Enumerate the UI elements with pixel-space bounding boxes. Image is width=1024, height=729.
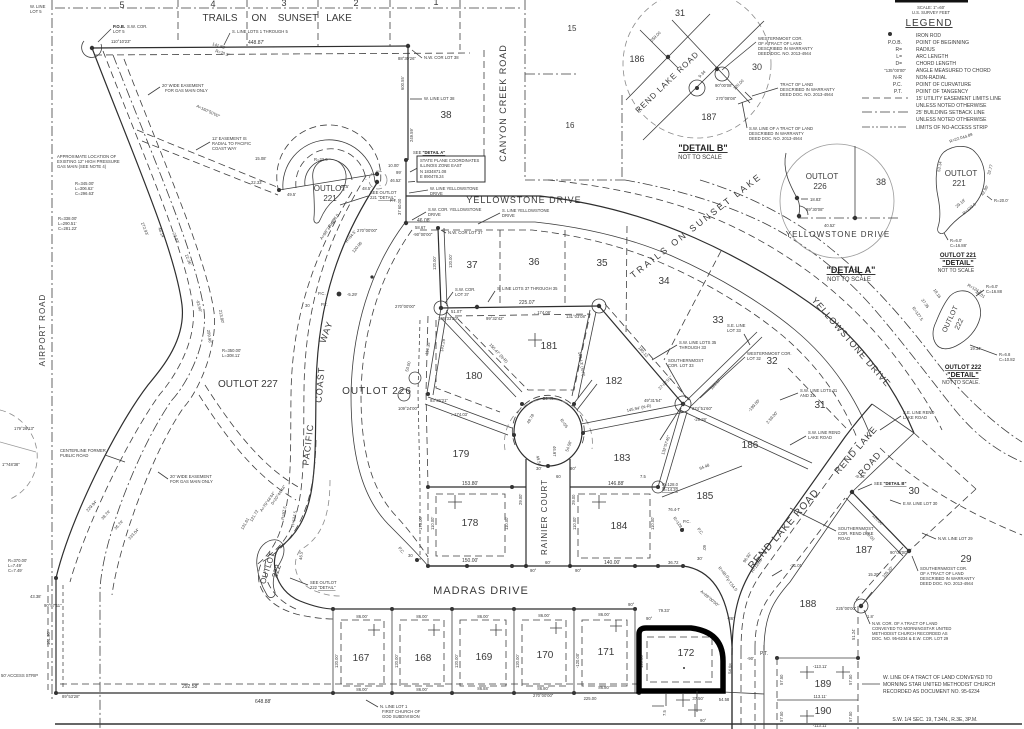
svg-text:RECORDED AS DOCUMENT NO. 95-62: RECORDED AS DOCUMENT NO. 95-6234: [883, 689, 980, 695]
svg-text:LIMITS OF NO-ACCESS STRIP: LIMITS OF NO-ACCESS STRIP: [916, 125, 988, 131]
svg-text:222 "DETAIL": 222 "DETAIL": [310, 585, 336, 590]
svg-text:185: 185: [697, 491, 714, 502]
svg-text:29: 29: [960, 554, 972, 565]
svg-text:90°: 90°: [628, 602, 635, 607]
svg-text:15.20': 15.20': [868, 572, 879, 577]
svg-text:89°53'28": 89°53'28": [62, 694, 80, 699]
svg-text:1: 1: [433, 0, 438, 7]
svg-text:249.59': 249.59': [409, 128, 414, 142]
svg-text:NON-RADIAL: NON-RADIAL: [916, 75, 947, 81]
svg-text:AND 32: AND 32: [800, 393, 815, 398]
svg-text:U.S. SURVEY FEET: U.S. SURVEY FEET: [912, 10, 951, 15]
svg-text:38: 38: [440, 110, 452, 121]
svg-text:-5.29': -5.29': [347, 292, 358, 297]
svg-text:15.08': 15.08': [255, 156, 266, 161]
svg-text:57.50: 57.50: [779, 711, 784, 722]
svg-text:YELLOWSTONE DRIVE: YELLOWSTONE DRIVE: [786, 230, 890, 239]
svg-text:"DETAIL": "DETAIL": [947, 372, 978, 379]
svg-text:C=296.63': C=296.63': [75, 191, 94, 196]
svg-text:-113.11': -113.11': [813, 723, 828, 728]
svg-text:"DETAIL A": "DETAIL A": [827, 265, 876, 275]
svg-text:30': 30': [536, 466, 542, 471]
svg-text:180: 180: [466, 371, 483, 382]
svg-text:38: 38: [876, 177, 886, 187]
svg-text:E.W. LINE LOT 30: E.W. LINE LOT 30: [903, 501, 938, 506]
svg-text:LOT 32: LOT 32: [747, 356, 762, 361]
svg-text:60: 60: [556, 474, 561, 479]
svg-text:270°08'08": 270°08'08": [716, 96, 737, 101]
svg-text:88°30'26": 88°30'26": [398, 56, 416, 61]
svg-text:37: 37: [466, 260, 478, 271]
svg-text:3: 3: [281, 0, 286, 8]
svg-text:ANGLE MEASURED TO CHORD: ANGLE MEASURED TO CHORD: [916, 68, 991, 74]
svg-text:CHORD LENGTH: CHORD LENGTH: [916, 61, 956, 67]
svg-text:FOR GAS MAIN ONLY: FOR GAS MAIN ONLY: [165, 88, 208, 93]
svg-text:40.52': 40.52': [824, 223, 835, 228]
svg-text:648.88': 648.88': [255, 699, 271, 705]
svg-text:COR. LOT 33: COR. LOT 33: [668, 363, 694, 368]
svg-text:36: 36: [528, 257, 540, 268]
svg-text:120.00': 120.00': [432, 256, 437, 270]
svg-text:RADIUS: RADIUS: [916, 47, 936, 53]
svg-text:90°: 90°: [530, 568, 537, 573]
svg-text:DEED DOC. NO. 2013-4944: DEED DOC. NO. 2013-4944: [758, 51, 812, 56]
svg-text:C=7.49': C=7.49': [8, 568, 23, 573]
svg-text:OUTLOT 222: OUTLOT 222: [945, 365, 982, 371]
svg-text:NOT TO SCALE: NOT TO SCALE: [827, 277, 871, 283]
svg-text:90°57'11": 90°57'11": [44, 603, 62, 608]
svg-text:15: 15: [568, 24, 577, 33]
svg-text:167: 167: [353, 653, 370, 664]
svg-text:MORNING STAR UNITED METHODIST: MORNING STAR UNITED METHODIST CHURCH: [883, 682, 996, 688]
svg-text:183: 183: [614, 453, 631, 464]
svg-text:1.8': 1.8': [867, 614, 874, 619]
svg-text:86.88': 86.88': [477, 686, 488, 691]
svg-text:86.00': 86.00': [598, 612, 609, 617]
svg-text:COAST WAY: COAST WAY: [212, 146, 237, 151]
svg-text:IRON ROD: IRON ROD: [916, 33, 941, 39]
svg-text:C=16.88: C=16.88: [986, 289, 1003, 294]
svg-text:110.00': 110.00': [430, 517, 435, 530]
svg-text:170: 170: [537, 650, 554, 661]
svg-text:184: 184: [611, 521, 628, 532]
svg-text:181: 181: [541, 341, 558, 352]
svg-text:86.00': 86.00': [356, 614, 367, 619]
svg-text:R=22.0: R=22.0: [314, 157, 328, 162]
svg-text:79.33': 79.33': [658, 608, 669, 613]
svg-text:60': 60': [702, 545, 707, 551]
svg-text:86.80': 86.80': [537, 686, 548, 691]
svg-text:270°00'00": 270°00'00": [357, 228, 378, 233]
svg-text:168: 168: [415, 653, 432, 664]
svg-text:-90°00'00": -90°00'00": [413, 232, 433, 237]
svg-text:"DETAIL B": "DETAIL B": [678, 143, 727, 153]
svg-text:W. LINE OF A TRACT OF LAND CON: W. LINE OF A TRACT OF LAND CONVEYED TO: [883, 675, 992, 681]
svg-text:89°30'08": 89°30'08": [806, 207, 824, 212]
svg-text:P.C.: P.C.: [318, 291, 326, 296]
svg-text:179: 179: [453, 449, 470, 460]
svg-text:-36': -36': [727, 616, 734, 621]
svg-text:10.00': 10.00': [388, 163, 399, 168]
svg-text:110.00': 110.00': [504, 517, 509, 530]
svg-text:"135°00'00": "135°00'00": [884, 68, 906, 73]
svg-text:600.55': 600.55': [400, 76, 405, 90]
svg-text:UNLESS NOTED OTHERWISE: UNLESS NOTED OTHERWISE: [916, 103, 987, 109]
svg-text:THROUGH 33: THROUGH 33: [679, 345, 707, 350]
svg-text:-113.11': -113.11': [813, 664, 828, 669]
svg-text:169: 169: [476, 652, 493, 663]
svg-text:60': 60': [545, 560, 551, 565]
svg-text:36.72: 36.72: [668, 560, 679, 565]
svg-text:L=308.11': L=308.11': [222, 353, 240, 358]
svg-text:N.W. COR LOT 37: N.W. COR LOT 37: [448, 230, 483, 235]
svg-text:140.00': 140.00': [604, 560, 620, 566]
svg-text:110°10'23": 110°10'23": [111, 39, 131, 44]
svg-text:57.50: 57.50: [779, 674, 784, 685]
svg-text:"DETAIL": "DETAIL": [942, 260, 973, 267]
svg-text:ON: ON: [252, 13, 267, 24]
svg-text:120.00': 120.00': [515, 654, 520, 668]
svg-text:CANYON CREEK ROAD: CANYON CREEK ROAD: [498, 44, 508, 162]
svg-text:175.00': 175.00': [418, 516, 423, 530]
svg-text:OUTLOT 227: OUTLOT 227: [218, 379, 278, 390]
svg-text:25' BUILDING SETBACK LINE: 25' BUILDING SETBACK LINE: [916, 110, 985, 116]
svg-text:LAKE ROAD: LAKE ROAD: [808, 435, 832, 440]
svg-text:S.W. COR.: S.W. COR.: [127, 24, 147, 29]
svg-text:DEED DOC. NO. 2013-4944: DEED DOC. NO. 2013-4944: [749, 136, 803, 141]
svg-text:S. LINE LOTS 1 THROUGH 5: S. LINE LOTS 1 THROUGH 5: [232, 29, 288, 34]
svg-text:5: 5: [119, 0, 124, 10]
svg-text:R=: R=: [895, 47, 902, 53]
svg-text:172: 172: [678, 648, 695, 659]
svg-text:113.11': 113.11': [814, 694, 827, 699]
svg-text:190: 190: [815, 706, 832, 717]
svg-text:7.5: 7.5: [640, 474, 646, 479]
svg-text:C=10.82: C=10.82: [999, 357, 1016, 362]
svg-text:30': 30': [697, 556, 703, 561]
svg-text:ILLINOIS ZONE EAST: ILLINOIS ZONE EAST: [420, 163, 463, 168]
svg-text:LAKE ROAD: LAKE ROAD: [903, 415, 927, 420]
svg-text:C=14.20: C=14.20: [662, 487, 679, 492]
svg-text:PUBLIC ROAD: PUBLIC ROAD: [60, 453, 88, 458]
svg-text:86.00': 86.00': [416, 614, 427, 619]
svg-text:-21.01': -21.01': [790, 563, 803, 568]
svg-text:179°26'13": 179°26'13": [14, 426, 35, 431]
svg-text:S. LINE LOTS 37 THROUGH 35: S. LINE LOTS 37 THROUGH 35: [497, 286, 558, 291]
svg-text:221: 221: [952, 179, 966, 188]
svg-text:TRAILS: TRAILS: [202, 13, 237, 24]
svg-text:448.87': 448.87': [248, 40, 264, 46]
svg-text:150.00': 150.00': [462, 558, 478, 564]
svg-text:90°: 90°: [570, 466, 577, 471]
svg-text:LOT 37: LOT 37: [455, 292, 470, 297]
svg-text:7.5: 7.5: [662, 710, 667, 716]
svg-text:D=: D=: [895, 61, 902, 67]
svg-text:FOR GAS MAIN ONLY: FOR GAS MAIN ONLY: [170, 479, 213, 484]
svg-text:16: 16: [566, 121, 575, 130]
svg-text:86.80': 86.80': [598, 685, 609, 690]
svg-text:188: 188: [800, 599, 817, 610]
svg-text:15' UTILITY EASEMENT LIMITS LI: 15' UTILITY EASEMENT LIMITS LINE: [916, 96, 1002, 102]
svg-text:49.5': 49.5': [287, 192, 296, 197]
svg-text:N-R: N-R: [893, 75, 902, 81]
svg-text:P.T.: P.T.: [321, 302, 328, 307]
svg-text:57.50: 57.50: [848, 674, 853, 685]
svg-text:225°00'00": 225°00'00": [836, 606, 857, 611]
svg-text:29.00': 29.00': [518, 494, 523, 505]
svg-text:90°: 90°: [646, 616, 653, 621]
svg-text:SUNSET: SUNSET: [278, 13, 319, 24]
svg-text:54.58: 54.58: [719, 697, 730, 702]
svg-text:LOT 5: LOT 5: [30, 9, 42, 14]
svg-text:153.80': 153.80': [462, 481, 478, 487]
svg-text:MADRAS DRIVE: MADRAS DRIVE: [433, 585, 529, 597]
svg-text:37 60.00: 37 60.00: [397, 198, 402, 215]
svg-text:OUTLOT 221: OUTLOT 221: [940, 253, 977, 259]
svg-text:46.52': 46.52': [390, 178, 401, 183]
svg-text:ARC LENGTH: ARC LENGTH: [916, 54, 949, 60]
svg-text:49°31'54": 49°31'54": [644, 398, 662, 403]
svg-text:50' ACCESS STRIP: 50' ACCESS STRIP: [1, 673, 38, 678]
svg-text:E 890478.24: E 890478.24: [420, 174, 444, 179]
svg-text:-29.28': -29.28': [694, 417, 707, 422]
svg-text:221: 221: [323, 194, 337, 203]
svg-text:30: 30: [908, 486, 920, 497]
svg-text:33: 33: [712, 315, 724, 326]
svg-text:86.00': 86.00': [356, 687, 367, 692]
svg-text:DRIVE: DRIVE: [428, 212, 441, 217]
svg-text:225.07': 225.07': [519, 300, 535, 306]
svg-text:86.00': 86.00': [416, 687, 427, 692]
svg-text:29.00: 29.00: [571, 494, 576, 505]
svg-text:←174.03': ←174.03': [450, 412, 468, 417]
svg-text:120.00': 120.00': [448, 254, 453, 268]
svg-text:POINT OF TANGENCY: POINT OF TANGENCY: [916, 89, 969, 95]
svg-text:LAKE: LAKE: [326, 13, 352, 24]
svg-text:GOD SUBDIVISION: GOD SUBDIVISION: [382, 714, 420, 719]
svg-text:RAINIER COURT: RAINIER COURT: [540, 479, 549, 555]
svg-text:30: 30: [305, 303, 310, 308]
svg-text:120.00': 120.00': [394, 654, 399, 668]
svg-text:DEED DOC. NO. 2013-4944: DEED DOC. NO. 2013-4944: [780, 92, 834, 97]
svg-text:270°00'00": 270°00'00": [533, 693, 554, 698]
svg-text:P.C.: P.C.: [683, 519, 691, 524]
svg-text:31: 31: [675, 8, 685, 18]
svg-text:58.67: 58.67: [415, 225, 426, 230]
svg-text:N.W. LINE LOT 29: N.W. LINE LOT 29: [938, 536, 973, 541]
svg-text:186: 186: [629, 54, 644, 64]
svg-text:186: 186: [742, 440, 759, 451]
svg-text:30: 30: [752, 62, 762, 72]
svg-text:110.00': 110.00': [650, 517, 655, 530]
svg-text:86.00': 86.00': [477, 614, 488, 619]
svg-text:SEE "DETAIL A": SEE "DETAIL A": [413, 150, 445, 155]
svg-text:POINT OF CURVATURE: POINT OF CURVATURE: [916, 82, 972, 88]
svg-text:-54.49-: -54.49-: [541, 396, 555, 401]
svg-text:C=16.88': C=16.88': [950, 243, 967, 248]
svg-text:46.08': 46.08': [417, 218, 431, 224]
svg-text:ROAD: ROAD: [838, 536, 850, 541]
svg-text:161.90': 161.90': [46, 631, 51, 645]
svg-text:34: 34: [658, 276, 670, 287]
svg-text:N.W. COR LOT 38: N.W. COR LOT 38: [424, 55, 459, 60]
svg-text:DOC. NO. 95-6234 & E.W. COR. L: DOC. NO. 95-6234 & E.W. COR. LOT 29: [872, 636, 949, 641]
svg-text:NOT TO SCALE: NOT TO SCALE: [678, 155, 722, 161]
svg-text:120.00': 120.00': [454, 654, 459, 668]
svg-text:-90': -90': [747, 656, 754, 661]
svg-text:S.W. 1/4 SEC. 19, T.34N., R.3E: S.W. 1/4 SEC. 19, T.34N., R.3E, 3P.M.: [892, 717, 977, 723]
svg-text:46.5': 46.5': [340, 184, 349, 189]
svg-text:LOT 33: LOT 33: [727, 328, 742, 333]
svg-text:46.5': 46.5': [298, 551, 304, 561]
svg-text:P.O.B.: P.O.B.: [888, 40, 902, 46]
svg-text:46.97: 46.97: [552, 446, 557, 457]
svg-text:57.50: 57.50: [848, 711, 853, 722]
svg-text:90°00'08": 90°00'08": [715, 83, 733, 88]
svg-text:51.07': 51.07': [451, 309, 462, 314]
svg-text:OUTLOT 226: OUTLOT 226: [342, 386, 412, 397]
svg-text:22.33': 22.33': [251, 180, 262, 185]
svg-text:1"?48'38": 1"?48'38": [2, 462, 20, 467]
svg-text:90°: 90°: [700, 718, 707, 723]
svg-text:189: 189: [815, 679, 832, 690]
svg-text:-9.34': -9.34': [855, 474, 866, 479]
svg-text:178: 178: [462, 518, 479, 529]
svg-text:P.C.: P.C.: [893, 82, 902, 88]
svg-text:187: 187: [856, 545, 873, 556]
svg-text:GAS MAIN (SEE NOTE 4): GAS MAIN (SEE NOTE 4): [57, 164, 107, 169]
svg-text:292.58': 292.58': [182, 684, 198, 690]
svg-text:99°32'42": 99°32'42": [486, 316, 504, 321]
svg-text:99': 99': [396, 170, 402, 175]
svg-text:270°00'00": 270°00'00": [395, 304, 416, 309]
svg-text:4: 4: [210, 0, 215, 9]
svg-text:90°: 90°: [575, 568, 582, 573]
svg-text:NOT TO SCALE.: NOT TO SCALE.: [942, 380, 980, 386]
svg-text:225.00: 225.00: [584, 696, 597, 701]
svg-text:30: 30: [408, 553, 413, 558]
svg-text:110.00': 110.00': [572, 517, 577, 530]
svg-text:51.24': 51.24': [851, 629, 856, 640]
svg-text:LOT 5: LOT 5: [113, 29, 125, 34]
svg-text:131°03'08": 131°03'08": [566, 314, 587, 319]
svg-text:120.00': 120.00': [334, 654, 339, 668]
svg-text:109°24'00": 109°24'00": [398, 406, 419, 411]
svg-text:35: 35: [596, 258, 608, 269]
svg-text:274°51'60": 274°51'60": [692, 406, 713, 411]
svg-text:LEGEND: LEGEND: [905, 18, 952, 29]
svg-text:43.38': 43.38': [30, 594, 41, 599]
svg-text:NOT TO SCALE: NOT TO SCALE: [938, 268, 975, 274]
svg-text:DRIVE: DRIVE: [502, 213, 515, 218]
svg-text:SEE "DETAIL B": SEE "DETAIL B": [874, 481, 906, 486]
svg-text:171: 171: [598, 647, 615, 658]
svg-text:POINT OF BEGINNING: POINT OF BEGINNING: [916, 40, 969, 46]
svg-text:86.00': 86.00': [538, 613, 549, 618]
svg-text:DRIVE: DRIVE: [430, 191, 443, 196]
svg-text:OUTLOT: OUTLOT: [945, 169, 978, 178]
svg-text:187: 187: [701, 112, 716, 122]
svg-text:-120.00': -120.00': [575, 653, 580, 668]
svg-text:76.4-T: 76.4-T: [668, 507, 681, 512]
svg-text:DEED DOC. NO. 2013-4944: DEED DOC. NO. 2013-4944: [920, 581, 974, 586]
svg-text:P.T.: P.T.: [760, 651, 768, 657]
svg-text:226: 226: [813, 182, 827, 191]
svg-text:37.50': 37.50': [692, 696, 703, 701]
svg-text:OUTLOT: OUTLOT: [806, 172, 839, 181]
svg-text:W. LINE LOT 38: W. LINE LOT 38: [424, 96, 455, 101]
svg-text:18.83': 18.83': [810, 197, 821, 202]
svg-text:146.88': 146.88': [608, 481, 624, 487]
svg-text:2: 2: [353, 0, 358, 8]
svg-text:182: 182: [606, 376, 623, 387]
svg-text:R=20.0': R=20.0': [994, 198, 1009, 203]
svg-text:AIRPORT ROAD: AIRPORT ROAD: [38, 294, 47, 367]
svg-text:P.T.: P.T.: [390, 198, 397, 203]
svg-text:C=281.22': C=281.22': [58, 226, 77, 231]
svg-text:UNLESS NOTED OTHERWISE: UNLESS NOTED OTHERWISE: [916, 117, 987, 123]
svg-text:L=: L=: [896, 54, 902, 60]
svg-text:P.T.: P.T.: [894, 89, 902, 95]
svg-text:32: 32: [766, 356, 778, 367]
